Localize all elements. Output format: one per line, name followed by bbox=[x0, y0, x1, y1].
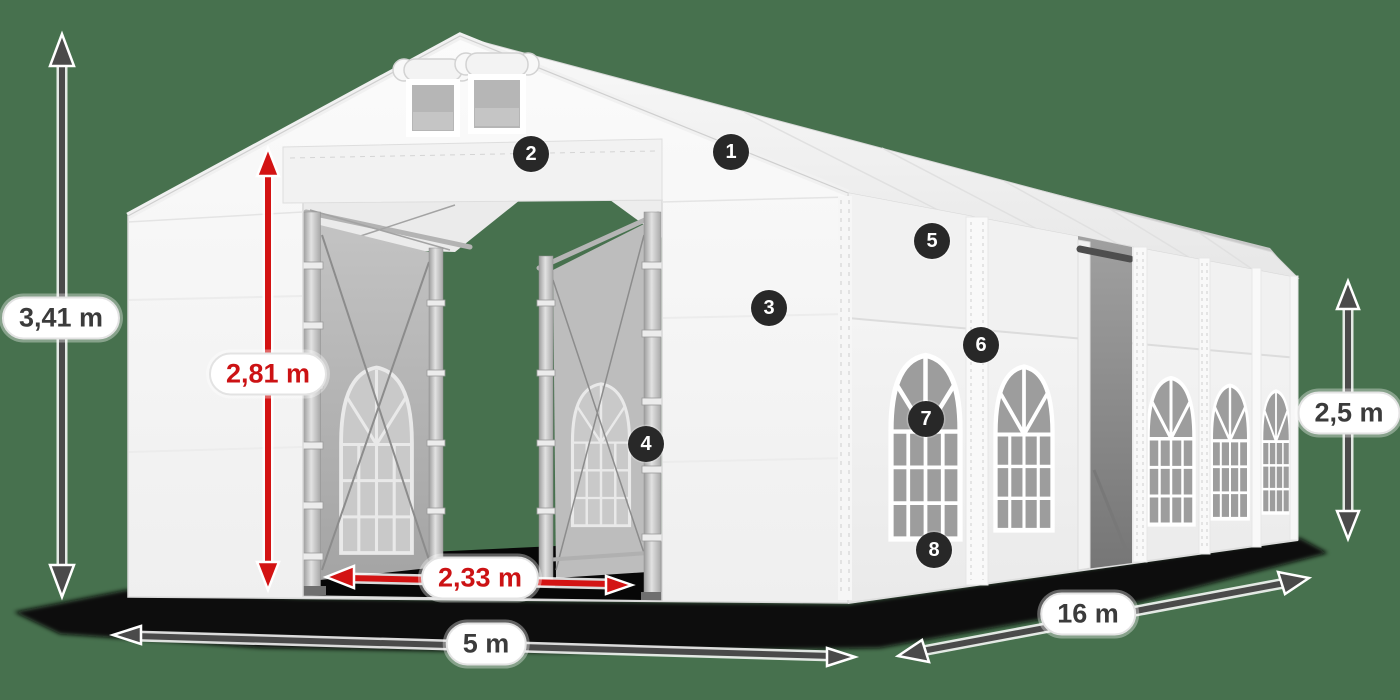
marker-4[interactable]: 4 bbox=[628, 426, 664, 462]
marker-2[interactable]: 2 bbox=[513, 136, 549, 172]
marker-3[interactable]: 3 bbox=[751, 290, 787, 326]
dimension-label-entrance-width: 2,33 m bbox=[421, 556, 539, 599]
marker-7[interactable]: 7 bbox=[908, 401, 944, 437]
entrance-interior bbox=[296, 200, 665, 601]
dimension-label-front-width: 5 m bbox=[446, 622, 527, 665]
tent-illustration bbox=[0, 0, 1400, 700]
side-doorway-open bbox=[1078, 236, 1132, 570]
marker-5[interactable]: 5 bbox=[914, 223, 950, 259]
marker-1[interactable]: 1 bbox=[713, 134, 749, 170]
dimension-label-side-length: 16 m bbox=[1040, 592, 1136, 635]
dimension-label-total-height: 3,41 m bbox=[2, 296, 120, 339]
tent-dimensions-diagram: { "diagram": { "subject": "party-tent-wi… bbox=[0, 0, 1400, 700]
marker-8[interactable]: 8 bbox=[916, 532, 952, 568]
marker-6[interactable]: 6 bbox=[963, 327, 999, 363]
dimension-label-entrance-height: 2,81 m bbox=[209, 352, 327, 395]
entrance-lintel bbox=[283, 139, 662, 203]
dimension-label-side-height: 2,5 m bbox=[1297, 391, 1400, 434]
